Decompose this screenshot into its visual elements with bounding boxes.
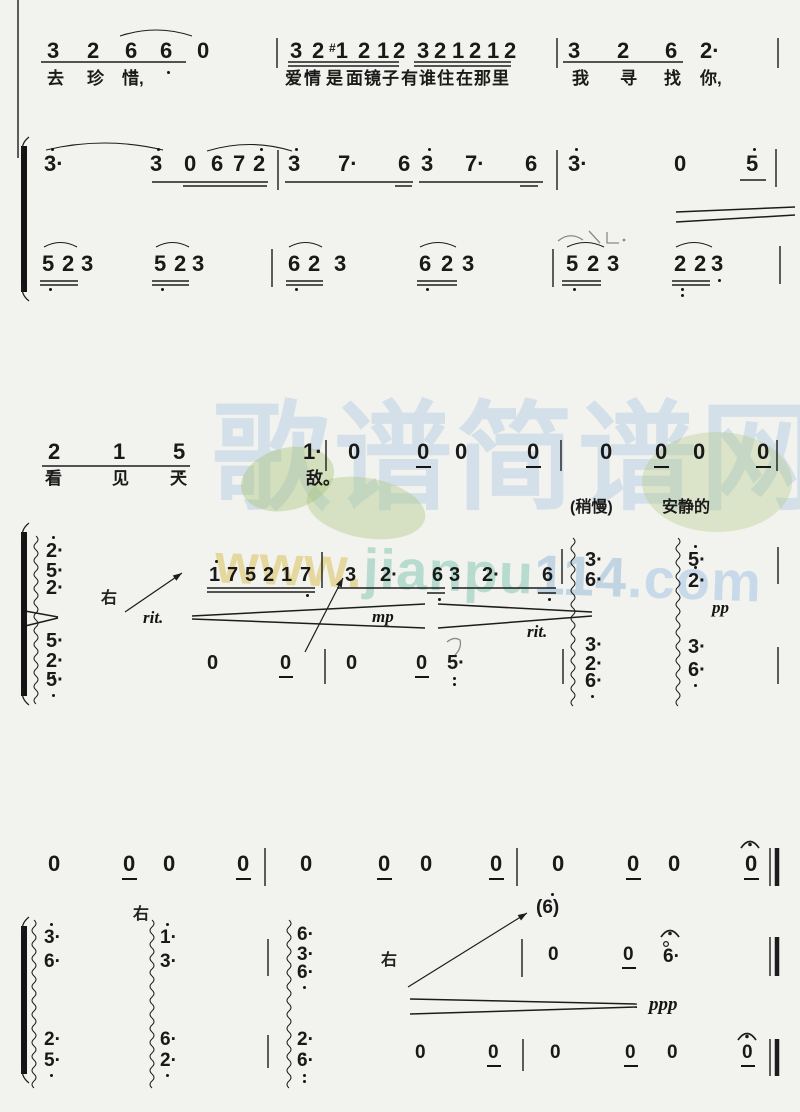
rest-token: 0 <box>745 853 757 875</box>
dynamic-marking: rit. <box>527 623 547 640</box>
score-tokens: 3266032#12123212123262·去珍惜,爱情是面镜子有谁住在那里我… <box>0 0 800 1112</box>
note-token: 3 <box>711 253 723 275</box>
octave-dot <box>157 148 160 151</box>
octave-dot <box>718 279 721 282</box>
octave-dot <box>295 288 298 291</box>
rest-token: 0 <box>378 853 390 875</box>
note-token: 1 <box>281 565 292 585</box>
octave-dot <box>453 677 456 680</box>
octave-dot <box>51 148 54 151</box>
note-token: 3 <box>607 253 619 275</box>
note-token: 5 <box>245 565 256 585</box>
note-token: 7· <box>338 153 358 175</box>
sheet-music-page: 歌谱简谱网 www.jianpu114.com 3266032#12123212… <box>0 0 800 1112</box>
octave-dot <box>215 560 218 563</box>
rest-underline <box>415 676 429 678</box>
rest-underline <box>416 466 431 468</box>
note-token: 3 <box>47 40 59 62</box>
octave-dot <box>426 288 429 291</box>
octave-dot <box>166 923 169 926</box>
note-token: 5 <box>746 153 758 175</box>
note-token: 2· <box>46 651 64 671</box>
lyric-char: 那 <box>474 70 491 87</box>
rest-token: 0 <box>415 1043 426 1062</box>
note-token: 5 <box>42 253 54 275</box>
note-token: 3· <box>44 153 64 175</box>
rest-token: 0 <box>667 1043 678 1062</box>
rest-token: 0 <box>184 153 196 175</box>
octave-dot <box>681 294 684 297</box>
lyric-char: 情 <box>304 70 321 87</box>
note-token: 3· <box>160 952 177 971</box>
rest-token: 0 <box>416 653 427 673</box>
note-token: 2· <box>380 565 398 585</box>
octave-dot <box>303 986 306 989</box>
note-token: 3· <box>585 635 603 655</box>
note-token: 6 <box>211 153 223 175</box>
lyric-char: 是 <box>326 70 343 87</box>
octave-dot <box>167 71 170 74</box>
lyric-char: 我 <box>572 70 589 87</box>
octave-dot <box>161 288 164 291</box>
lyric-char: 住 <box>437 70 454 87</box>
note-token: 2 <box>441 253 453 275</box>
note-token: 2 <box>469 40 481 62</box>
note-token: 5· <box>46 670 64 690</box>
lyric-char: 镜 <box>364 70 381 87</box>
note-token: 2 <box>358 40 370 62</box>
note-token: (6) <box>536 898 559 917</box>
lyric-char: 珍 <box>87 70 104 87</box>
note-token: 2· <box>160 1051 177 1070</box>
note-token: 3 <box>288 153 300 175</box>
note-token: 6· <box>160 1030 177 1049</box>
rest-token: 0 <box>197 40 209 62</box>
octave-dot <box>694 545 697 548</box>
note-token: 2 <box>312 40 324 62</box>
rest-token: 0 <box>420 853 432 875</box>
note-token: 3 <box>290 40 302 62</box>
rest-token: 0 <box>627 853 639 875</box>
note-token: 2 <box>48 441 60 463</box>
note-token: 1· <box>160 928 177 947</box>
note-token: 2 <box>174 253 186 275</box>
note-token: 2 <box>87 40 99 62</box>
note-token: 2 <box>393 40 405 62</box>
rest-underline <box>654 466 669 468</box>
octave-dot <box>694 684 697 687</box>
note-token: 6· <box>44 952 61 971</box>
note-token: 3· <box>688 637 706 657</box>
note-token: 2· <box>688 571 706 591</box>
octave-dot <box>260 148 263 151</box>
rest-token: 0 <box>48 853 60 875</box>
note-token: 2 <box>694 253 706 275</box>
rest-token: 0 <box>123 853 135 875</box>
tempo-marking: 安静的 <box>662 500 710 516</box>
note-token: 6· <box>663 947 680 966</box>
note-token: 5· <box>46 631 64 651</box>
note-token: 2· <box>297 1030 314 1049</box>
lyric-char: 在 <box>456 70 473 87</box>
note-token: 6· <box>297 963 314 982</box>
hand-label: 右 <box>381 953 397 969</box>
lyric-char: 有 <box>401 70 418 87</box>
note-token: 6 <box>432 565 443 585</box>
rest-underline <box>626 878 641 880</box>
octave-dot <box>681 288 684 291</box>
rest-token: 0 <box>346 653 357 673</box>
rest-token: 0 <box>550 1043 561 1062</box>
note-token: 5 <box>173 441 185 463</box>
octave-dot <box>453 683 456 686</box>
dynamic-marking: ppp <box>649 995 678 1014</box>
note-token: 6 <box>542 565 553 585</box>
lyric-char: 面 <box>346 70 363 87</box>
rest-token: 0 <box>488 1043 499 1062</box>
lyric-char: 你, <box>700 70 722 87</box>
note-token: 2 <box>253 153 265 175</box>
lyric-char: 子 <box>382 70 399 87</box>
dynamic-marking: mp <box>372 608 394 625</box>
lyric-char: 天 <box>170 470 187 487</box>
rest-underline <box>526 466 541 468</box>
rest-token: 0 <box>237 853 249 875</box>
note-token: 2· <box>482 565 500 585</box>
note-token: 5 <box>154 253 166 275</box>
note-token: 3 <box>568 40 580 62</box>
rest-token: 0 <box>623 945 634 964</box>
octave-dot <box>438 598 441 601</box>
note-token: 6 <box>419 253 431 275</box>
octave-dot <box>49 288 52 291</box>
note-token: 7 <box>233 153 245 175</box>
octave-dot <box>295 148 298 151</box>
rest-token: 0 <box>417 441 429 463</box>
dynamic-marking: pp <box>712 599 729 616</box>
rest-token: 0 <box>300 853 312 875</box>
hand-label: 右 <box>133 907 149 923</box>
dynamic-marking: rit. <box>143 609 163 626</box>
note-token: 2· <box>46 541 64 561</box>
octave-dot <box>52 536 55 539</box>
rest-underline <box>236 878 251 880</box>
note-token: 2 <box>62 253 74 275</box>
note-token: 6 <box>288 253 300 275</box>
note-token: 6· <box>297 925 314 944</box>
rest-token: 0 <box>668 853 680 875</box>
rest-underline <box>377 878 392 880</box>
rest-token: 0 <box>455 441 467 463</box>
note-token: 2 <box>674 253 686 275</box>
rest-underline <box>741 1065 755 1067</box>
note-token: 1 <box>377 40 389 62</box>
lyric-char: 爱 <box>285 70 302 87</box>
note-token: 5· <box>447 653 465 673</box>
note-token: 2 <box>308 253 320 275</box>
note-token: 7· <box>465 153 485 175</box>
octave-dot <box>753 148 756 151</box>
note-token: 3· <box>568 153 588 175</box>
rest-token: 0 <box>757 441 769 463</box>
rest-token: 0 <box>490 853 502 875</box>
octave-dot <box>591 695 594 698</box>
note-token: 3 <box>150 153 162 175</box>
rest-underline <box>279 676 293 678</box>
note-token: 3 <box>449 565 460 585</box>
rest-underline <box>756 466 771 468</box>
octave-dot <box>573 288 576 291</box>
rest-token: 0 <box>207 653 218 673</box>
note-token: 6· <box>585 671 603 691</box>
note-token: 6 <box>160 40 172 62</box>
rest-token: 0 <box>163 853 175 875</box>
rest-underline <box>622 967 636 969</box>
lyric-char: 见 <box>112 470 129 487</box>
note-token: 6· <box>585 570 603 590</box>
rest-token: 0 <box>548 945 559 964</box>
note-token: 5 <box>566 253 578 275</box>
note-token: 2· <box>700 40 720 62</box>
note-token: 6· <box>688 660 706 680</box>
note-token: #1 <box>329 40 348 62</box>
rest-underline <box>624 1065 638 1067</box>
note-token: 1 <box>209 565 220 585</box>
rest-token: 0 <box>742 1043 753 1062</box>
rest-token: 0 <box>280 653 291 673</box>
lyric-char: 敌。 <box>306 470 340 487</box>
lyric-char: 找 <box>664 70 681 87</box>
note-token: 7 <box>300 565 311 585</box>
note-token: 3 <box>417 40 429 62</box>
rest-token: 0 <box>693 441 705 463</box>
note-token: 6 <box>525 153 537 175</box>
note-token: 2 <box>617 40 629 62</box>
octave-dot <box>303 1080 306 1083</box>
octave-dot <box>548 598 551 601</box>
octave-dot <box>428 148 431 151</box>
rest-token: 0 <box>674 153 686 175</box>
rest-underline <box>744 878 759 880</box>
note-token: 3· <box>585 550 603 570</box>
octave-dot <box>551 893 554 896</box>
lyric-char: 惜, <box>122 70 144 87</box>
rest-underline <box>487 1065 501 1067</box>
lyric-char: 看 <box>45 470 62 487</box>
note-token: 2 <box>504 40 516 62</box>
octave-dot <box>50 1074 53 1077</box>
note-token: 3 <box>345 565 356 585</box>
note-token: 1 <box>113 441 125 463</box>
note-token: 3· <box>44 928 61 947</box>
note-token: 2 <box>263 565 274 585</box>
octave-dot <box>575 148 578 151</box>
note-token: 3 <box>462 253 474 275</box>
rest-token: 0 <box>552 853 564 875</box>
note-token: 7 <box>227 565 238 585</box>
tempo-marking: (稍慢) <box>570 500 613 516</box>
octave-dot <box>52 694 55 697</box>
note-token: 2· <box>44 1030 61 1049</box>
lyric-char: 谁 <box>419 70 436 87</box>
note-token: 5· <box>44 1051 61 1070</box>
rest-underline <box>122 878 137 880</box>
rest-token: 0 <box>655 441 667 463</box>
rest-token: 0 <box>527 441 539 463</box>
note-token: 6 <box>125 40 137 62</box>
lyric-char: 里 <box>492 70 509 87</box>
note-token: 1 <box>452 40 464 62</box>
note-token: 1 <box>487 40 499 62</box>
octave-dot <box>303 1074 306 1077</box>
note-token: 2 <box>434 40 446 62</box>
note-token: 1· <box>303 441 323 463</box>
note-token: 3 <box>421 153 433 175</box>
rest-token: 0 <box>625 1043 636 1062</box>
octave-dot <box>166 1074 169 1077</box>
rest-token: 0 <box>600 441 612 463</box>
note-token: 2 <box>587 253 599 275</box>
hand-label: 右 <box>101 591 117 607</box>
lyric-char: 去 <box>47 70 64 87</box>
sharp-sign: # <box>329 41 336 55</box>
note-token: 3 <box>81 253 93 275</box>
octave-dot <box>50 923 53 926</box>
note-token: 3 <box>192 253 204 275</box>
note-token: 3 <box>334 253 346 275</box>
note-token: 6 <box>665 40 677 62</box>
note-token: 6 <box>398 153 410 175</box>
note-token: 6· <box>297 1051 314 1070</box>
rest-underline <box>489 878 504 880</box>
lyric-char: 寻 <box>620 70 637 87</box>
note-token: 2· <box>46 578 64 598</box>
rest-token: 0 <box>348 441 360 463</box>
octave-dot <box>306 594 309 597</box>
